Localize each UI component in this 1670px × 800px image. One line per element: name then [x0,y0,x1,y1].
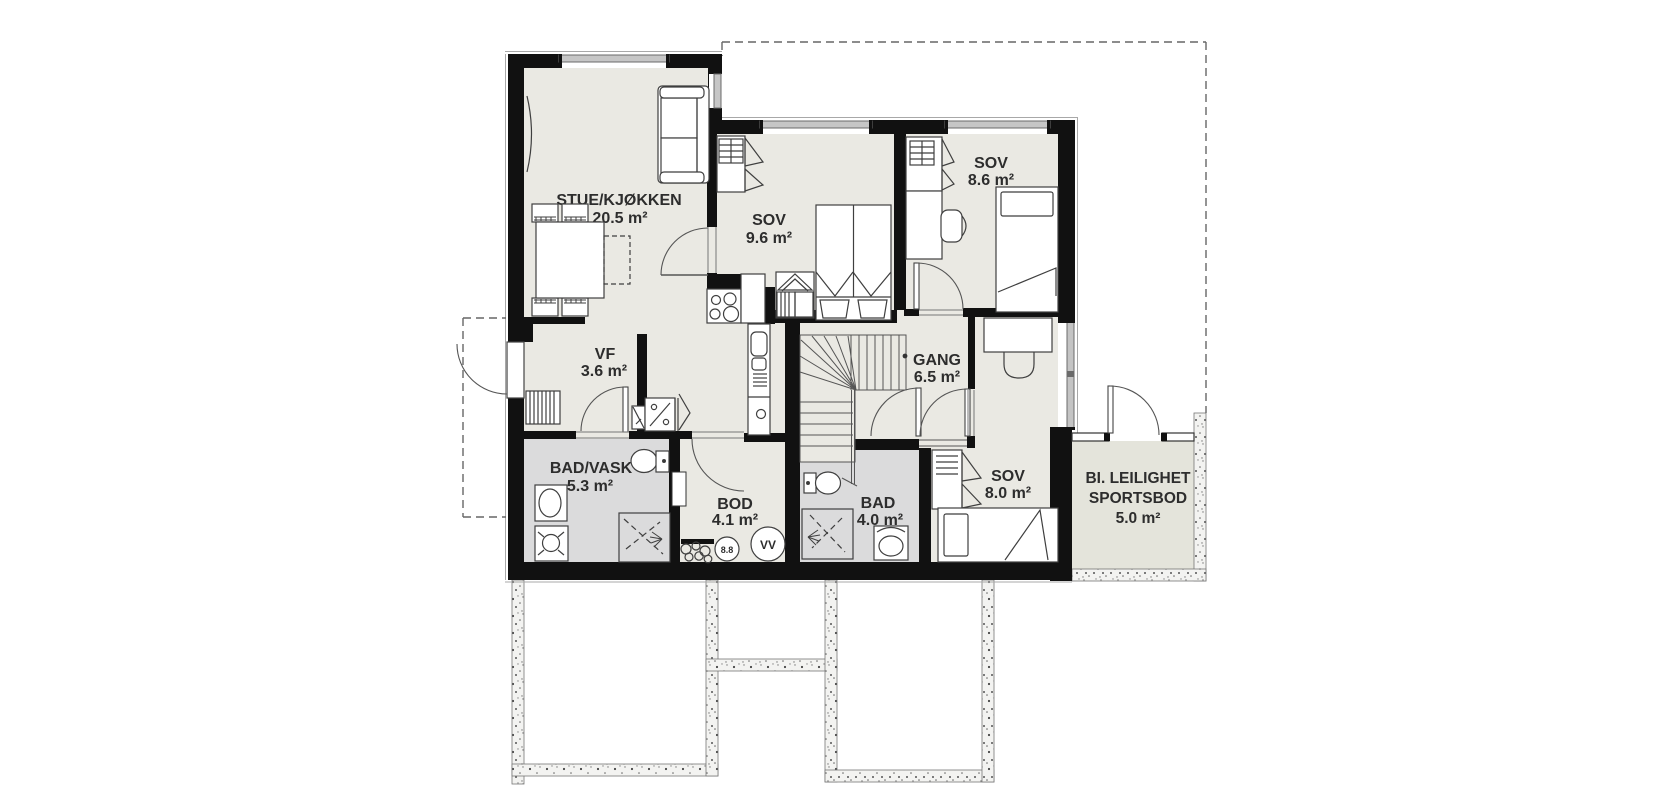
svg-text:BAD/VASK: BAD/VASK [550,460,633,477]
svg-text:VV: VV [760,538,776,552]
svg-text:GANG: GANG [913,352,961,369]
svg-text:SOV: SOV [974,155,1008,172]
svg-text:8.8: 8.8 [721,545,734,555]
svg-text:VF: VF [595,346,616,363]
svg-text:BAD: BAD [861,495,896,512]
svg-text:SPORTSBOD: SPORTSBOD [1089,490,1187,507]
svg-text:BOD: BOD [717,496,753,513]
svg-text:SOV: SOV [991,468,1025,485]
svg-text:6.5 m²: 6.5 m² [914,369,960,386]
svg-text:9.6 m²: 9.6 m² [746,230,792,247]
svg-text:SOV: SOV [752,212,786,229]
svg-text:5.0 m²: 5.0 m² [1116,510,1161,527]
svg-text:5.3 m²: 5.3 m² [567,478,613,495]
svg-text:3.6 m²: 3.6 m² [581,363,627,380]
svg-text:BI. LEILIGHET: BI. LEILIGHET [1085,470,1191,487]
svg-text:4.1 m²: 4.1 m² [712,512,758,529]
svg-text:8.0 m²: 8.0 m² [985,485,1031,502]
